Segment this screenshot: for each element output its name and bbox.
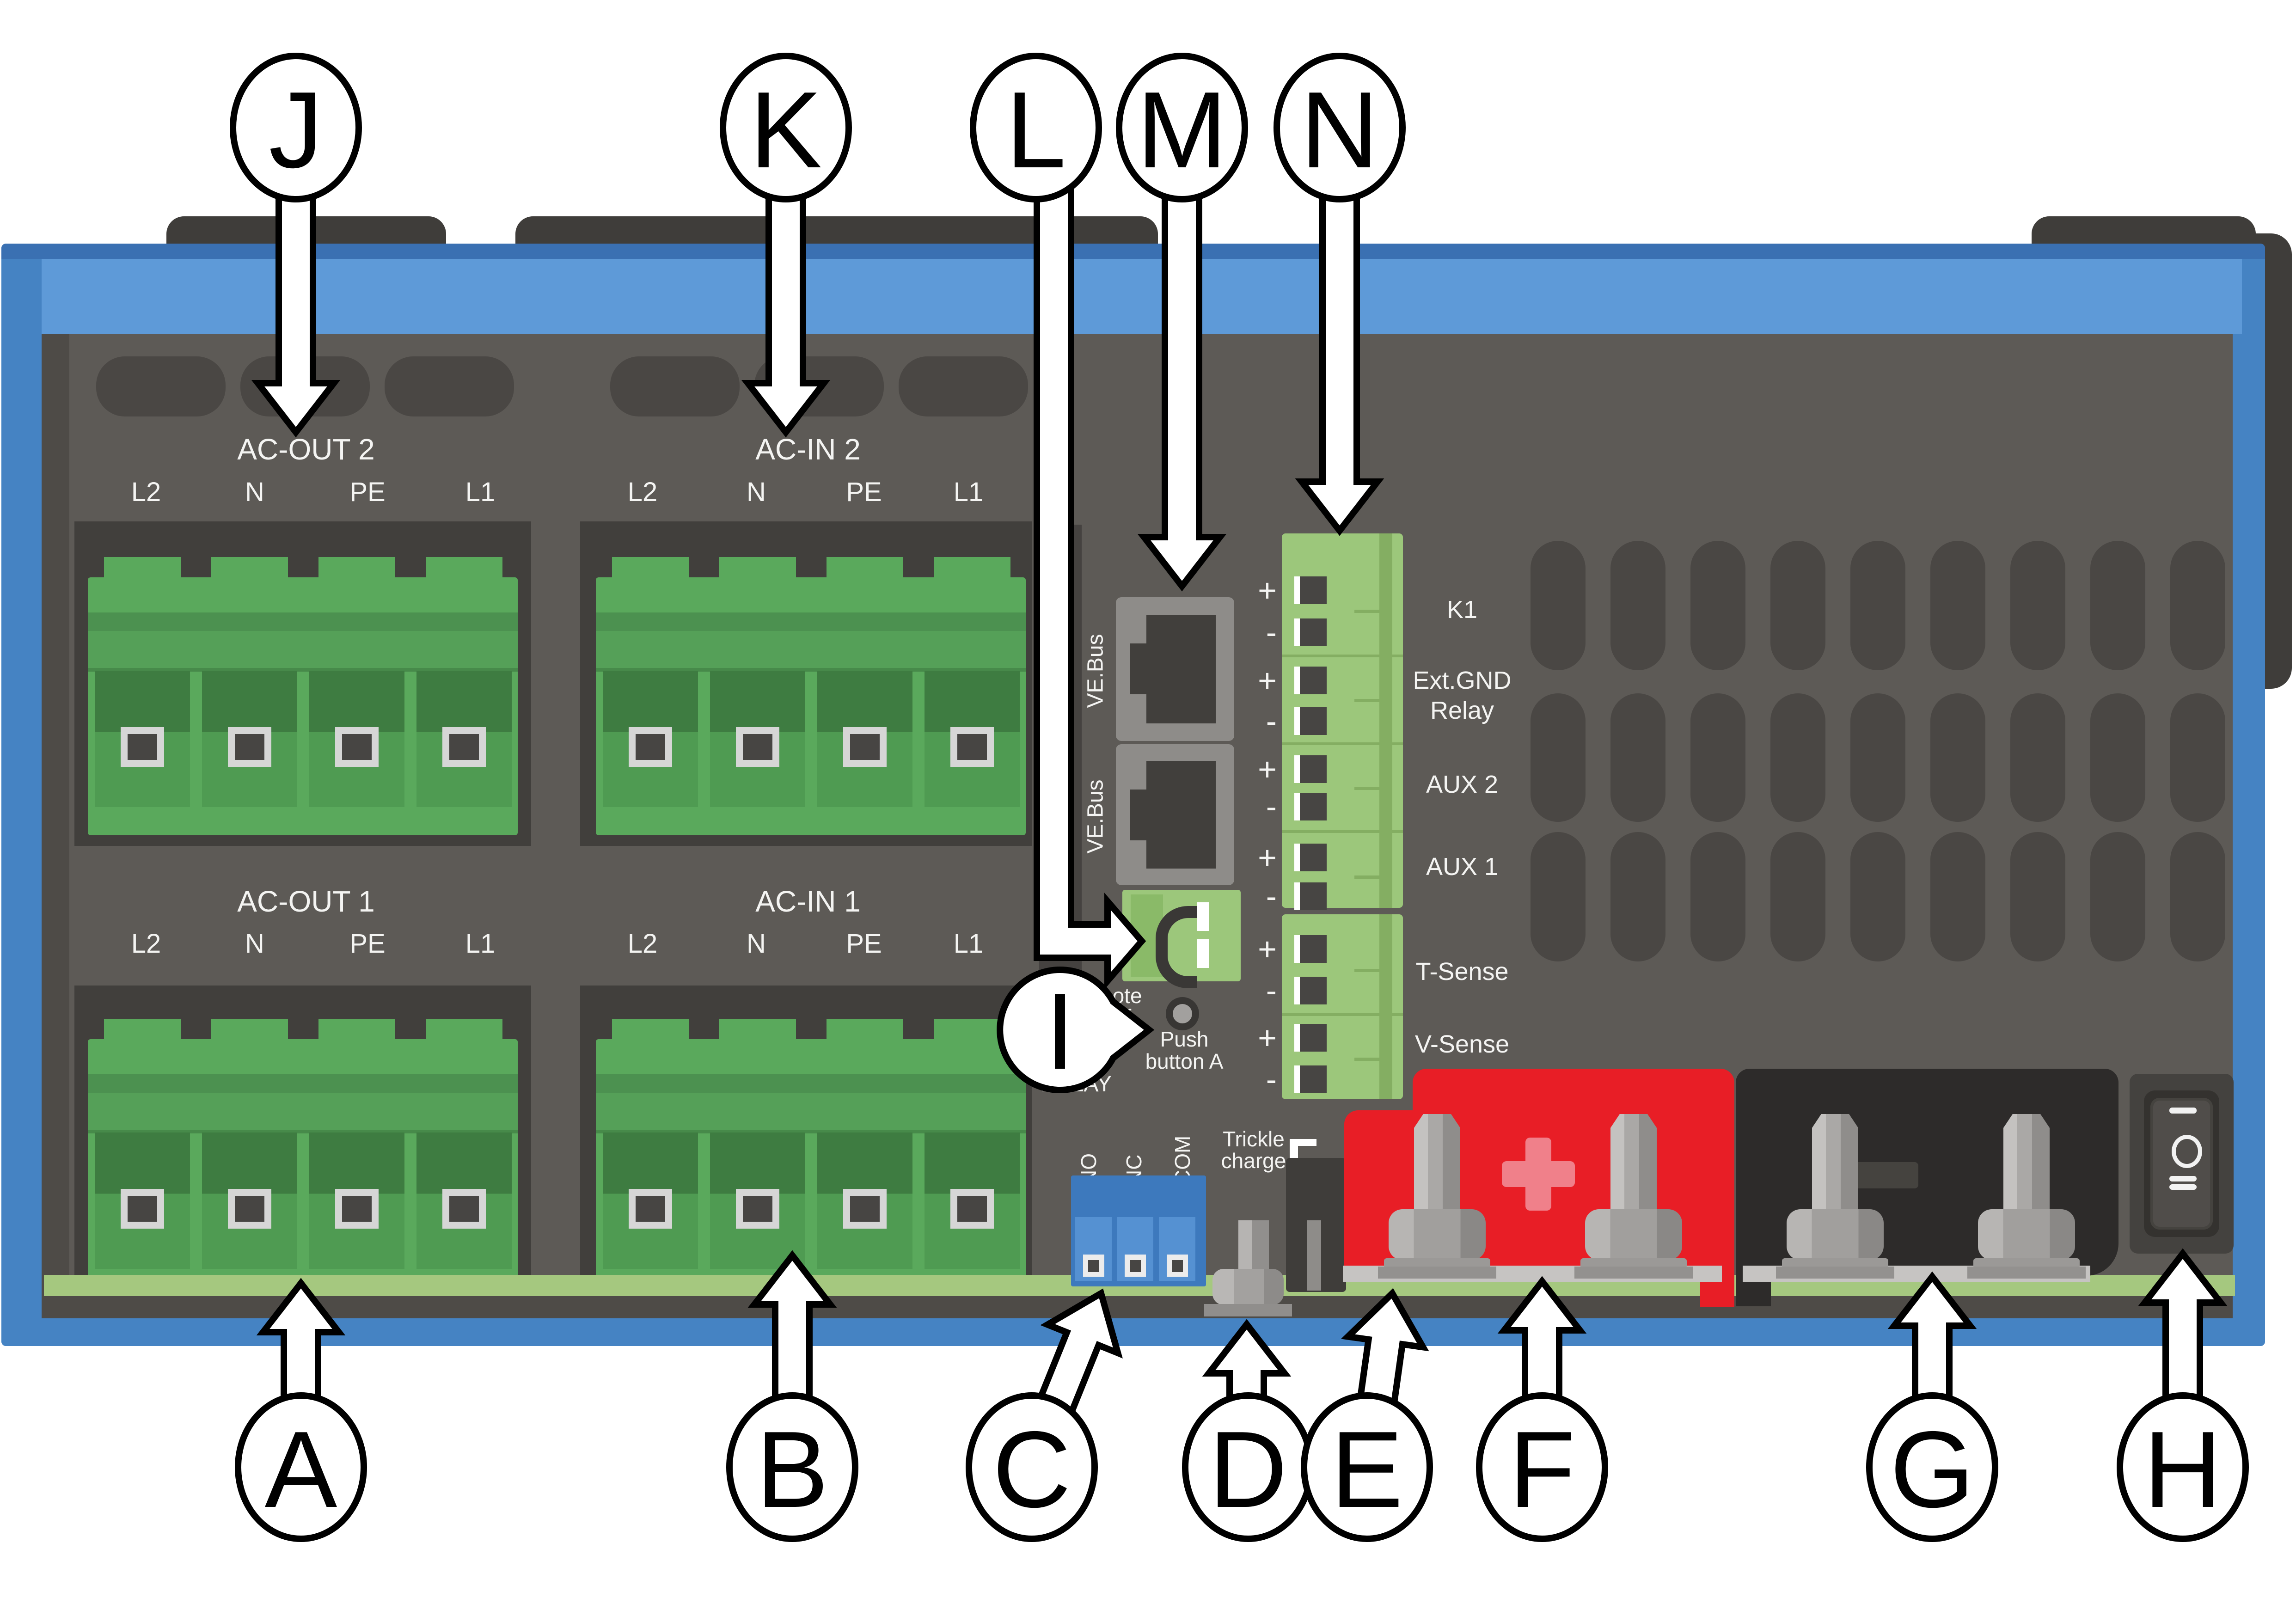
callout-overlay: J K L M N I A B C D E F G H [0,0,2296,1616]
diagram-canvas: AC-OUT 2 AC-IN 2 AC-OUT 1 AC-IN 1 L2 N P… [0,0,2296,1616]
callout-letter-a: A [265,1408,337,1530]
callout-letter-n: N [1300,69,1379,190]
callout-letter-j: J [269,69,323,190]
callout-letter-m: M [1137,69,1227,190]
callout-letter-l: L [1006,69,1066,190]
callout-letter-e: E [1331,1408,1403,1530]
callout-letter-g: G [1890,1408,1975,1530]
callout-letter-k: K [750,69,822,190]
callout-letter-h: H [2143,1408,2222,1530]
callout-letter-b: B [756,1408,829,1530]
callout-letter-d: D [1209,1408,1287,1530]
callout-letter-i: I [1045,970,1075,1092]
callout-arrow-m [1144,141,1220,586]
callout-letter-c: C [992,1408,1071,1530]
callout-arrow-l [1037,148,1142,981]
callout-letter-f: F [1509,1408,1575,1530]
